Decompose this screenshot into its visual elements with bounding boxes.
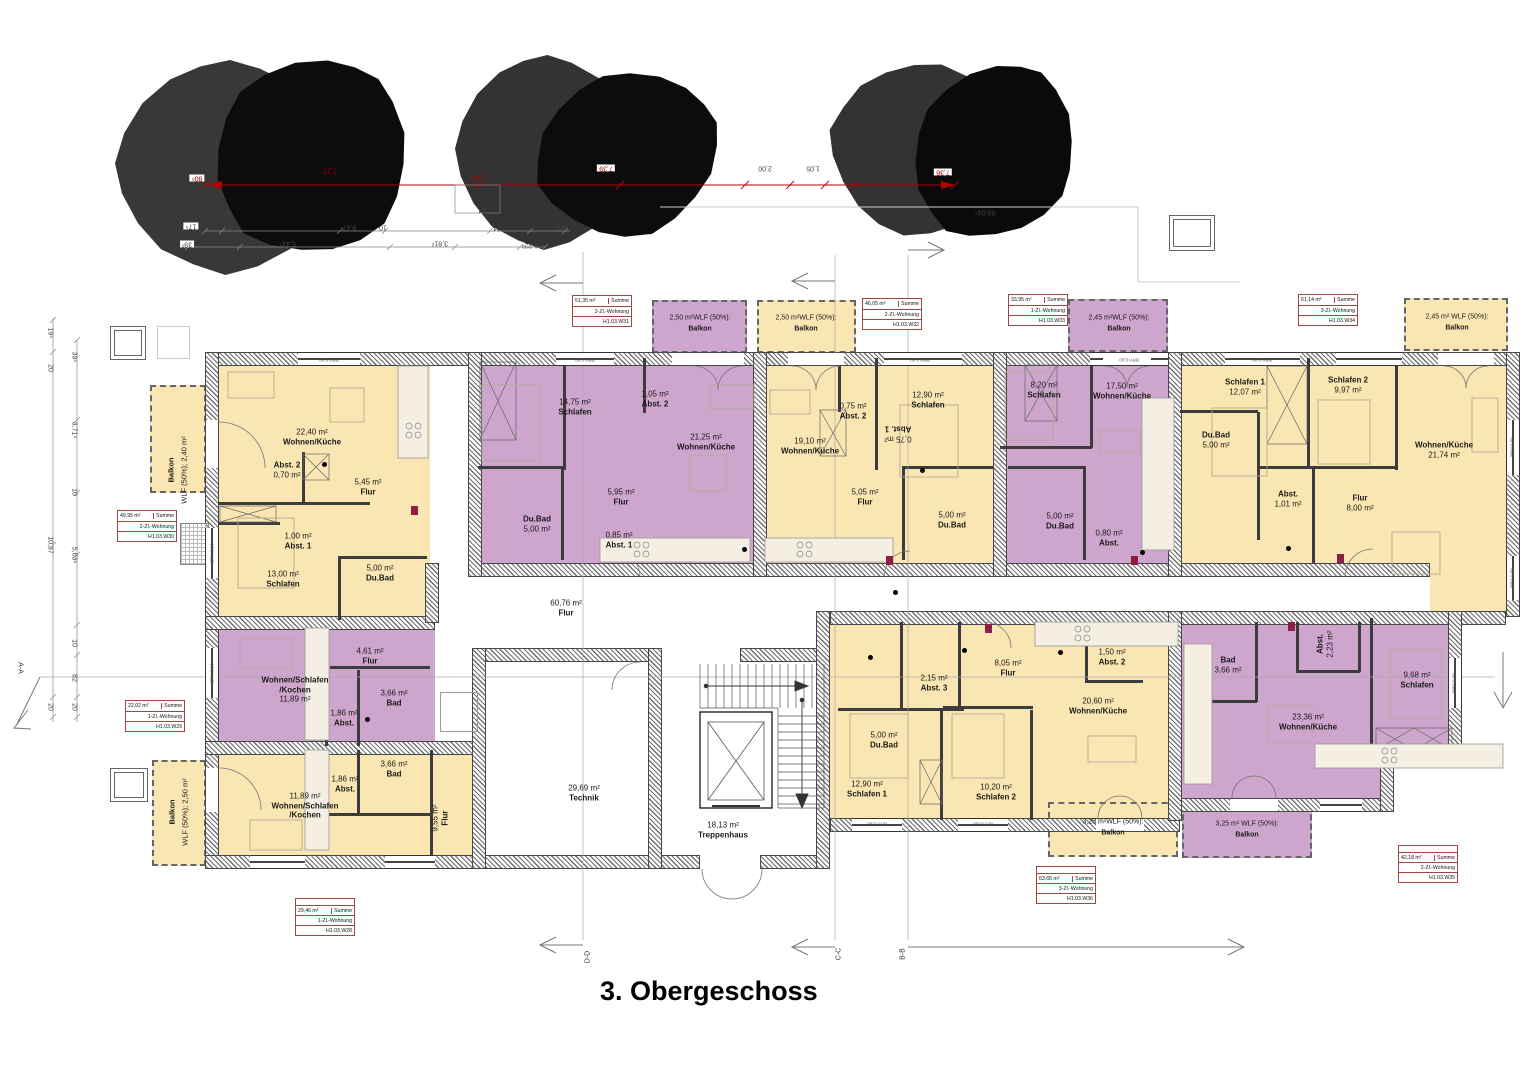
door-gap (672, 353, 744, 365)
dim-label: 7,39 (597, 165, 615, 172)
partition (561, 466, 564, 560)
door-gap (788, 353, 844, 365)
dim-label: 1,87² (470, 174, 486, 181)
room-label-w32-flur: 5,05 m²Flur (851, 487, 878, 506)
partition (1296, 622, 1299, 672)
room-label-w33-abst: 0,80 m²Abst. (1095, 528, 1122, 547)
dim-label: 3,71⁴ (71, 422, 78, 439)
ceiling-point (962, 648, 967, 653)
partition (1085, 680, 1143, 683)
room-label-w35-schlafen: 9,68 m²Schlafen (1400, 670, 1433, 689)
room-label-w29-wohnen: Wohnen/Schlafen/Kochen11,89 m² (262, 676, 329, 705)
partition (330, 666, 430, 669)
dim-label: 24 (478, 207, 486, 214)
partition (302, 452, 305, 502)
room-label-w28-wohnen: 11,89 m²Wohnen/Schlafen/Kochen (272, 792, 339, 821)
room-label-w30-dubad: 5,00 m²Du.Bad (366, 563, 394, 582)
ceiling-point (322, 462, 327, 467)
threshold-marker (1131, 556, 1138, 565)
ceiling-point (365, 717, 370, 722)
dim-label: 19⁵ (47, 328, 54, 339)
shaft-square (110, 326, 146, 360)
window-sill-label: BRH 0,00 (1252, 358, 1272, 363)
skylight-square (1169, 215, 1215, 251)
partition (1307, 466, 1398, 469)
wall (468, 352, 482, 577)
room-label-w35-wohnen-kueche: 23,36 m²Wohnen/Küche (1279, 712, 1337, 731)
room-label-w29-flur: 4,61 m²Flur (356, 646, 383, 665)
partition (430, 750, 433, 856)
dim-label: 10,37 (47, 536, 54, 554)
partition (1000, 446, 1092, 449)
window-sill-label: BRH 0,00 (210, 543, 215, 563)
room-label-w31-abst2: 1,05 m²Abst. 2 (641, 389, 668, 408)
room-label-treppenhaus: 18,13 m²Treppenhaus (698, 820, 748, 839)
room-label-w28-bad: 3,66 m²Bad (380, 759, 407, 778)
door-gap (1438, 353, 1494, 365)
partition (1257, 412, 1260, 540)
partition (338, 556, 341, 620)
partition (1083, 468, 1086, 560)
room-label-technik: 29,69 m²Technik (568, 783, 600, 802)
room-label-w36-abst2: 1,50 m²Abst. 2 (1098, 647, 1125, 666)
dim-label: 3,61² (432, 240, 448, 247)
partition (1030, 710, 1033, 820)
wall (425, 563, 439, 623)
wall (205, 352, 1520, 366)
room-label-w31-wohnen-kueche: 21,25 m²Wohnen/Küche (677, 432, 735, 451)
room-label-w31-dubad: Du.Bad5,00 m² (523, 514, 551, 533)
apartment-info-w34: 61,14 m²Summe 3-Zl.-Wohnung H1.03.W34 (1298, 294, 1358, 326)
partition (1090, 358, 1093, 448)
dim-label: 24 (493, 225, 501, 232)
room-label-w30-abst2: Abst. 20,70 m² (273, 460, 300, 479)
room-label-w34-flur: Flur8,00 m² (1346, 493, 1373, 512)
room-label-w32-wohnen-kueche: 19,10 m²Wohnen/Küche (781, 436, 839, 455)
partition (1180, 410, 1258, 413)
threshold-marker (985, 624, 992, 633)
room-label-w36-wohnen-kueche: 20,60 m²Wohnen/Küche (1069, 696, 1127, 715)
partition (328, 813, 430, 816)
wall (816, 611, 830, 869)
partition (940, 710, 943, 820)
partition (218, 522, 280, 525)
room-label-w31-flur: 5,95 m²Flur (607, 487, 634, 506)
apartment-w35-area (1180, 618, 1380, 802)
dim-label: 20 (47, 364, 54, 372)
wall (480, 648, 652, 662)
balcony-label-w32: 2,50 m²WLF (50%):Balkon (775, 314, 836, 335)
partition (902, 466, 905, 560)
ceiling-point (1058, 650, 1063, 655)
door-gap (206, 768, 218, 812)
partition (1358, 622, 1361, 672)
room-label-w33-schlafen: 8,20 m²Schlafen (1027, 380, 1060, 399)
window-sill-label: BRH 0,00 (1510, 568, 1515, 588)
dim-label: 20 (71, 703, 78, 711)
dim-label: 39⁵ (71, 352, 78, 363)
apartment-info-w28: 29,46 m²Summe 1-Zl.-Wohnung H1.03.W28 (295, 898, 355, 936)
threshold-marker (1288, 622, 1295, 631)
apartment-info-w32: 46,05 m²Summe 2-Zl.-Wohnung H1.03.W32 (862, 298, 922, 330)
partition (1370, 618, 1373, 754)
partition (218, 502, 370, 505)
window (1336, 352, 1402, 366)
window-sill-label: BRH 0,00 (319, 358, 339, 363)
room-label-w32-dubad: 5,00 m²Du.Bad (938, 510, 966, 529)
partition (478, 466, 564, 469)
room-label-w30-schlafen: 13,00 m²Schlafen (266, 569, 299, 588)
room-label-w30-wohnen-kueche: 22,40 m²Wohnen/Küche (283, 427, 341, 446)
partition (1296, 670, 1360, 673)
dim-label: 50,04⁵ (975, 209, 995, 216)
room-label-w34-abst: Abst.1,01 m² (1274, 489, 1301, 508)
room-label-w34-schlafen1: Schlafen 112,07 m² (1225, 377, 1265, 396)
room-label-w36-dubad: 5,00 m²Du.Bad (870, 730, 898, 749)
apartment-w32-area (760, 358, 1000, 570)
apartment-info-w35: 42,18 m²Summe 2-Zl.-Wohnung H1.03.W35 (1398, 845, 1458, 883)
door-gap (1230, 799, 1278, 811)
partition (1312, 468, 1315, 563)
partition (1195, 700, 1257, 703)
room-label-w28-abst: 1,86 m²Abst. (331, 774, 358, 793)
ceiling-point (742, 547, 747, 552)
balcony-label-w34: 2,45 m² WLF (50%):Balkon (1425, 313, 1488, 334)
wall (753, 352, 767, 577)
room-label-w34-dubad: Du.Bad5,00 m² (1202, 430, 1230, 449)
window-sill-label: BRH 0,00 (910, 358, 930, 363)
wall (648, 648, 662, 869)
room-label-w35-abst: Abst.2,23 m² (1315, 630, 1334, 657)
room-label-w30-flur: 5,45 m²Flur (354, 477, 381, 496)
partition (943, 706, 1033, 709)
dim-label: 20 (224, 210, 232, 217)
threshold-marker (1337, 554, 1344, 563)
dim-label: 5,63⁶ (71, 547, 78, 564)
window (385, 855, 435, 869)
dim-label: 10 (558, 224, 566, 231)
dim-label: 17⁵ (184, 223, 199, 230)
room-label-w32-abst2: 0,75 m²Abst. 2 (839, 401, 866, 420)
balcony-label-w36: 3,25 m²WLF (50%):Balkon (1082, 818, 1143, 839)
dim-label: 10 (379, 224, 387, 231)
dim-label: 20 (47, 703, 54, 711)
apartment-w28-area (212, 748, 480, 858)
door-gap (700, 856, 760, 868)
dim-label: 2,00 (758, 165, 772, 172)
shaft-square (110, 768, 148, 802)
ceiling-point (1286, 546, 1291, 551)
apartment-w30-area (212, 358, 430, 623)
apartment-w34-area (1430, 570, 1506, 615)
window-sill-label: BRH 0,00 (1119, 358, 1139, 363)
room-label-w32-abst1: 0,75 m²Abst. 1 (884, 424, 911, 443)
partition (875, 358, 878, 470)
partition (1085, 622, 1088, 682)
dim-label: 39³ (180, 241, 194, 248)
room-label-w36-schlafen2: 10,20 m²Schlafen 2 (976, 782, 1016, 801)
door-gap (206, 420, 218, 468)
room-label-w34-schlafen2: Schlafen 29,97 m² (1328, 375, 1368, 394)
wall (205, 616, 435, 630)
window-sill-label: BRH 0,00 (575, 358, 595, 363)
wall (472, 648, 486, 869)
dim-label: 10 (71, 639, 78, 647)
wall (468, 563, 1430, 577)
balcony-label-w33: 2,45 m²WLF (50%):Balkon (1088, 314, 1149, 335)
section-label-dd: D-D (585, 951, 592, 963)
dim-label: 8,47⁵ (340, 224, 357, 231)
section-label-cc: C-C (836, 948, 843, 960)
wall (1168, 611, 1182, 821)
dim-label: 5,44³ (280, 240, 296, 247)
dim-label: 1,22² (522, 242, 538, 249)
window-sill-label: BRH 0,00 (973, 822, 993, 827)
window-sill-label: BRH 0,00 (867, 822, 887, 827)
partition (900, 622, 903, 708)
room-label-w36-flur: 8,05 m²Flur (994, 658, 1021, 677)
partition (341, 556, 427, 559)
page-title: 3. Obergeschoss (600, 976, 818, 1007)
dim-label: 7,36 (934, 169, 952, 176)
apartment-info-w33: 33,95 m²Summe 1-Zl.-Wohnung H1.03.W33 (1008, 294, 1068, 326)
window (1320, 798, 1362, 812)
partition (1255, 622, 1258, 702)
room-label-w30-abst1: 1,00 m²Abst. 1 (284, 531, 311, 550)
room-label-w33-wohnen-kueche: 17,50 m²Wohnen/Küche (1093, 381, 1151, 400)
balcony-label-w35: 3,25 m² WLF (50%):Balkon (1215, 820, 1278, 841)
threshold-marker (886, 556, 893, 565)
ceiling-point (868, 655, 873, 660)
shaft-square (440, 692, 478, 732)
room-label-flur-gemeinsam: 60,76 m²Flur (550, 598, 582, 617)
threshold-marker (411, 506, 418, 515)
dim-label: 10 (71, 488, 78, 496)
partition (1307, 358, 1310, 468)
wall (1380, 752, 1394, 812)
ceiling-point (920, 468, 925, 473)
window-sill-label: BRH 0,00 (210, 663, 215, 683)
dim-label: 1,05 (806, 165, 820, 172)
wall (205, 741, 480, 755)
wall (1168, 352, 1182, 577)
room-label-w35-bad: Bad3,66 m² (1214, 655, 1241, 674)
room-label-w36-schlafen1: 12,90 m²Schlafen 1 (847, 779, 887, 798)
section-label-aa: A-A (17, 662, 24, 674)
partition (958, 622, 961, 710)
apartment-info-w31: 51,35 m²Summe 2-Zl.-Wohnung H1.03.W31 (572, 295, 632, 327)
window-sill-label: BRH 0,00 (1452, 673, 1457, 693)
balcony-label-w30: BalkonWLF (50%); 2,40 m² (165, 436, 191, 504)
wall (993, 352, 1007, 577)
section-label-bb: B-B (900, 948, 907, 960)
room-label-w28-flur: 9,55 m²Flur (430, 804, 449, 831)
ceiling-point (893, 590, 898, 595)
room-label-w31-schlafen: 14,75 m²Schlafen (558, 397, 591, 416)
dim-label: 7,27 (323, 167, 337, 174)
apartment-info-w30: 49,95 m²Summe 2-Zl.-Wohnung H1.03.W30 (117, 510, 177, 542)
floor-plan-canvas: 22,40 m²Wohnen/Küche Abst. 20,70 m² 5,45… (0, 0, 1529, 1080)
room-label-w33-dubad: 5,00 m²Du.Bad (1046, 511, 1074, 530)
window (250, 855, 305, 869)
partition (1008, 466, 1086, 469)
room-label-w36-abst3: 2,15 m²Abst. 3 (920, 673, 947, 692)
apartment-info-w29: 22,02 m²Summe 1-Zl.-Wohnung H1.03.W29 (125, 700, 185, 732)
room-label-w32-schlafen: 12,90 m²Schlafen (911, 390, 944, 409)
room-label-w31-abst1: 0,85 m²Abst. 1 (605, 530, 632, 549)
room-label-w29-bad: 3,66 m²Bad (380, 688, 407, 707)
dim-label: 80⁵ (190, 175, 205, 182)
shaft-square (157, 326, 190, 359)
balcony-label-w28: BalkonWLF (50%); 2,50 m² (166, 778, 192, 846)
window-sill-label: BRH 0,00 (1510, 437, 1515, 457)
dim-label: 82 (71, 674, 78, 682)
room-label-w34-wohnen-kueche: Wohnen/Küche21,74 m² (1415, 440, 1473, 459)
room-label-w29-abst: 1,86 m²Abst. (330, 708, 357, 727)
ceiling-point (1140, 550, 1145, 555)
partition (1395, 358, 1398, 470)
apartment-info-w36: 63,65 m²Summe 3-Zl.-Wohnung H1.03.W36 (1036, 866, 1096, 904)
partition (905, 466, 993, 469)
balcony-label-w31: 2,50 m²WLF (50%):Balkon (669, 314, 730, 335)
